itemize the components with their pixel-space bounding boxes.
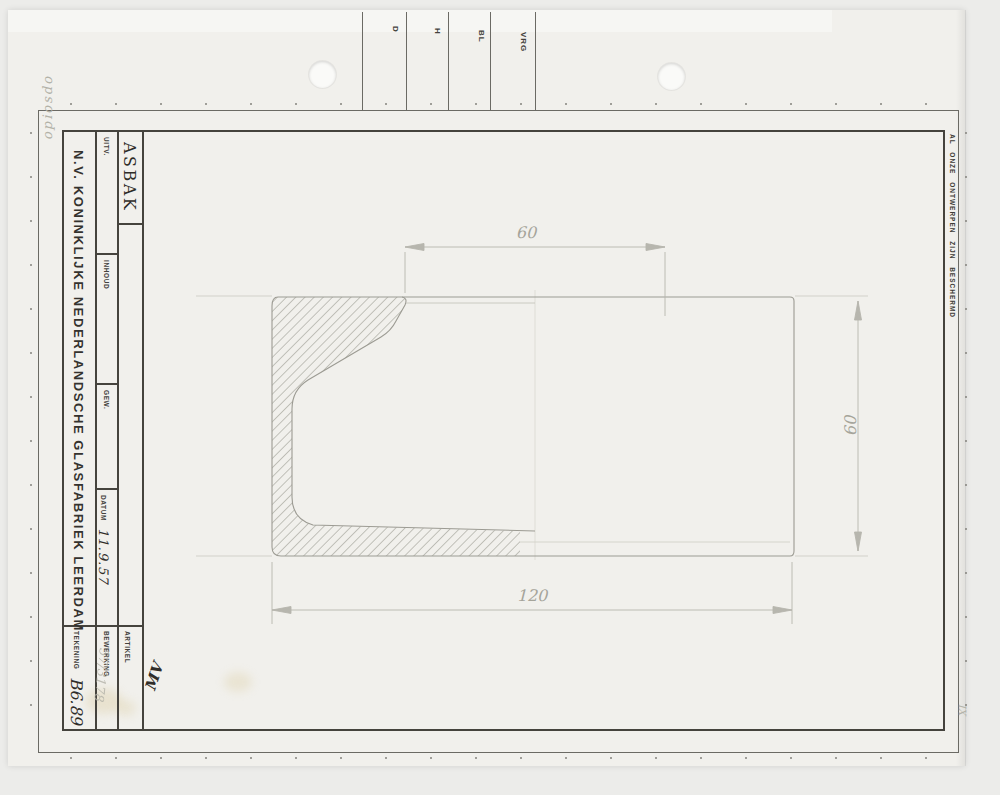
outer-rule-right xyxy=(958,110,959,752)
artikel-label: ARTIKEL xyxy=(124,631,131,663)
tab-strip-divider xyxy=(535,12,536,110)
tab-strip-divider xyxy=(362,12,363,110)
gew-label: GEW. xyxy=(103,390,110,409)
title-block-divider xyxy=(117,223,143,225)
title-block-divider xyxy=(142,130,144,729)
tab-strip-divider xyxy=(490,12,491,110)
tekening-cell: TEKENING B6.89 xyxy=(67,631,86,725)
outer-rule-left xyxy=(38,110,39,752)
title-block-divider xyxy=(95,383,118,385)
tab-label-vrg: VRG xyxy=(519,32,528,52)
tick-marks-right xyxy=(965,132,967,747)
tick-marks-top xyxy=(70,103,950,105)
datum-label: DATUM xyxy=(100,495,107,521)
tick-marks-bottom xyxy=(70,757,950,759)
punch-hole-left xyxy=(309,61,336,88)
scanned-drawing-sheet: D H BL VRG opiosdo IX AL ONZE ONTWERPEN … xyxy=(0,0,1000,795)
tick-marks-left xyxy=(30,132,32,747)
tab-label-h: H xyxy=(433,28,442,35)
rights-notice: AL ONZE ONTWERPEN ZIJN BESCHERMD xyxy=(949,134,956,318)
title-block-divider xyxy=(95,130,97,729)
corner-note-pencil: IX xyxy=(957,704,968,715)
drawing-title: ASBAK xyxy=(120,142,139,212)
inhoud-label: INHOUD xyxy=(103,260,110,289)
title-block-divider xyxy=(95,253,118,255)
title-block-divider xyxy=(95,488,118,490)
datum-cell: DATUM 11.9.57 xyxy=(96,495,111,585)
tekening-label: TEKENING xyxy=(73,631,80,669)
tab-strip-divider xyxy=(406,12,407,110)
uitv-label: UITV. xyxy=(103,137,110,156)
paper-top-edge xyxy=(8,10,832,32)
tekening-number: B6.89 xyxy=(67,677,86,724)
datum-value: 11.9.57 xyxy=(96,528,111,585)
company-name: N.V. KONINKLIJKE NEDERLANDSCHE GLASFABRI… xyxy=(71,150,86,632)
tab-label-bl: BL xyxy=(477,30,486,43)
punch-hole-right xyxy=(658,63,685,90)
tab-label-d: D xyxy=(391,26,400,33)
outer-rule-top xyxy=(38,110,958,111)
margin-note-pencil: opiosdo xyxy=(40,40,55,140)
title-block-divider xyxy=(117,130,119,729)
outer-rule-bottom xyxy=(38,752,959,753)
tab-strip-divider xyxy=(448,12,449,110)
drawing-frame xyxy=(62,130,945,731)
